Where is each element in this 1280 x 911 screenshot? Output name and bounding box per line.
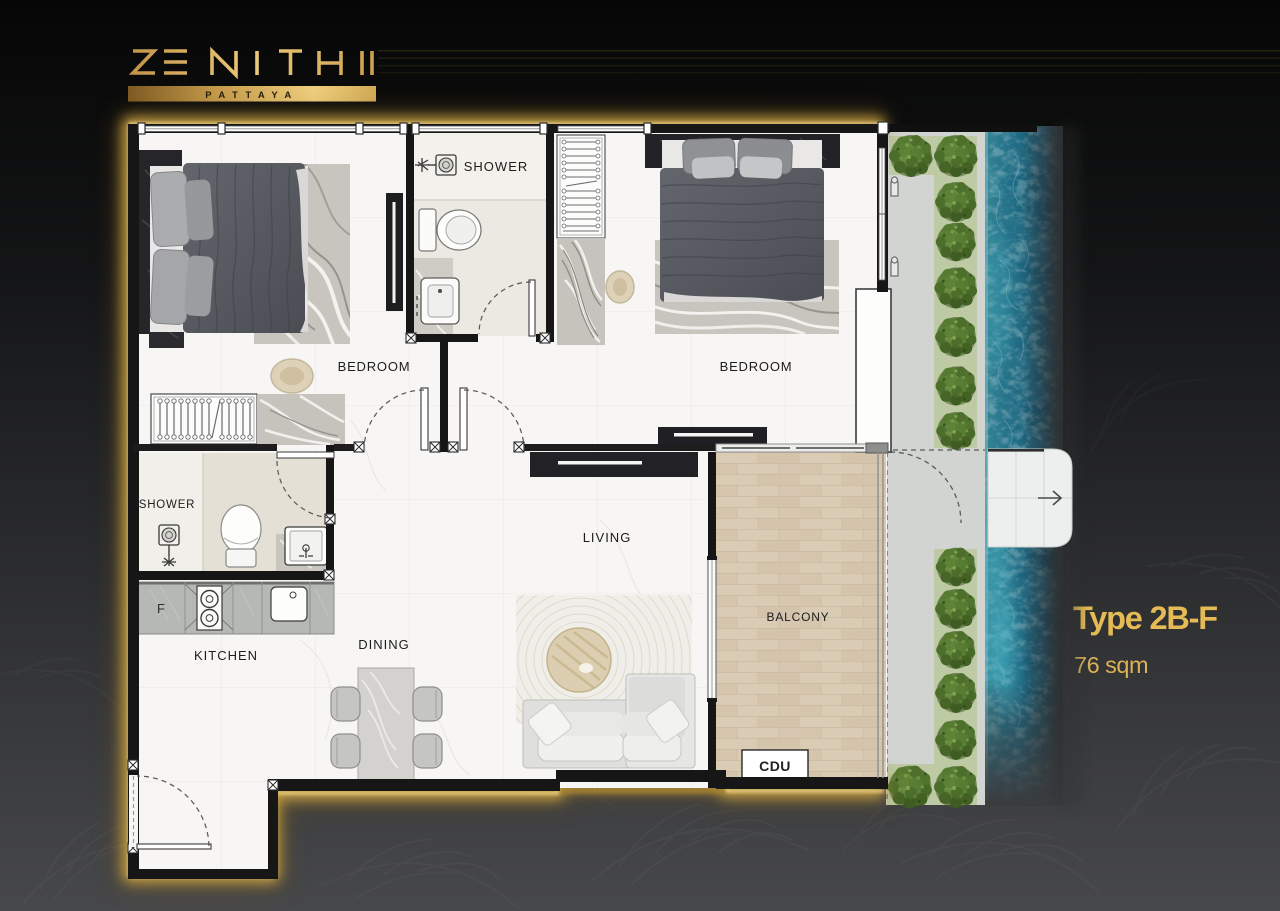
- svg-text:BEDROOM: BEDROOM: [720, 359, 793, 374]
- svg-text:SHOWER: SHOWER: [139, 499, 196, 511]
- svg-text:PATTAYA: PATTAYA: [205, 90, 299, 101]
- svg-text:DINING: DINING: [358, 637, 410, 652]
- svg-text:F: F: [157, 601, 165, 616]
- svg-text:BALCONY: BALCONY: [767, 610, 830, 624]
- svg-text:Type 2B-F: Type 2B-F: [1073, 600, 1217, 636]
- svg-text:SHOWER: SHOWER: [464, 159, 529, 174]
- svg-text:KITCHEN: KITCHEN: [194, 648, 258, 663]
- svg-text:CDU: CDU: [759, 758, 791, 774]
- svg-text:BEDROOM: BEDROOM: [338, 359, 411, 374]
- svg-text:76 sqm: 76 sqm: [1074, 652, 1148, 678]
- svg-text:LIVING: LIVING: [583, 530, 632, 545]
